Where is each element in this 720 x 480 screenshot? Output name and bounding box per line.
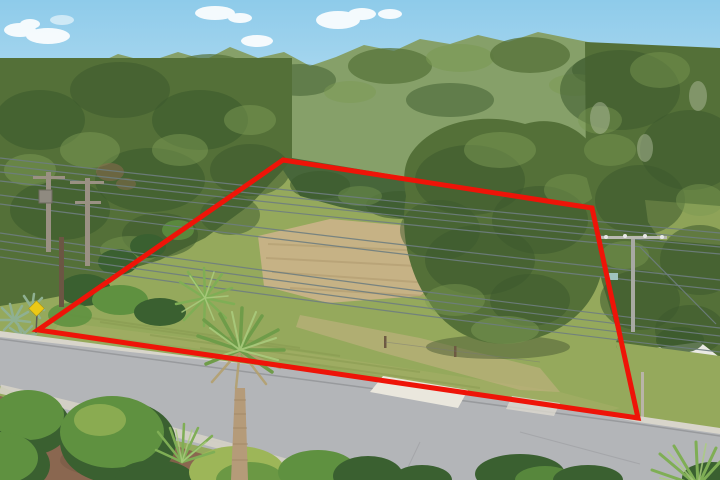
utility-pole-brown	[59, 237, 64, 307]
aerial-photo	[0, 0, 720, 480]
utility-pole-corner	[641, 372, 644, 418]
aerial-photo-canvas	[0, 0, 720, 480]
